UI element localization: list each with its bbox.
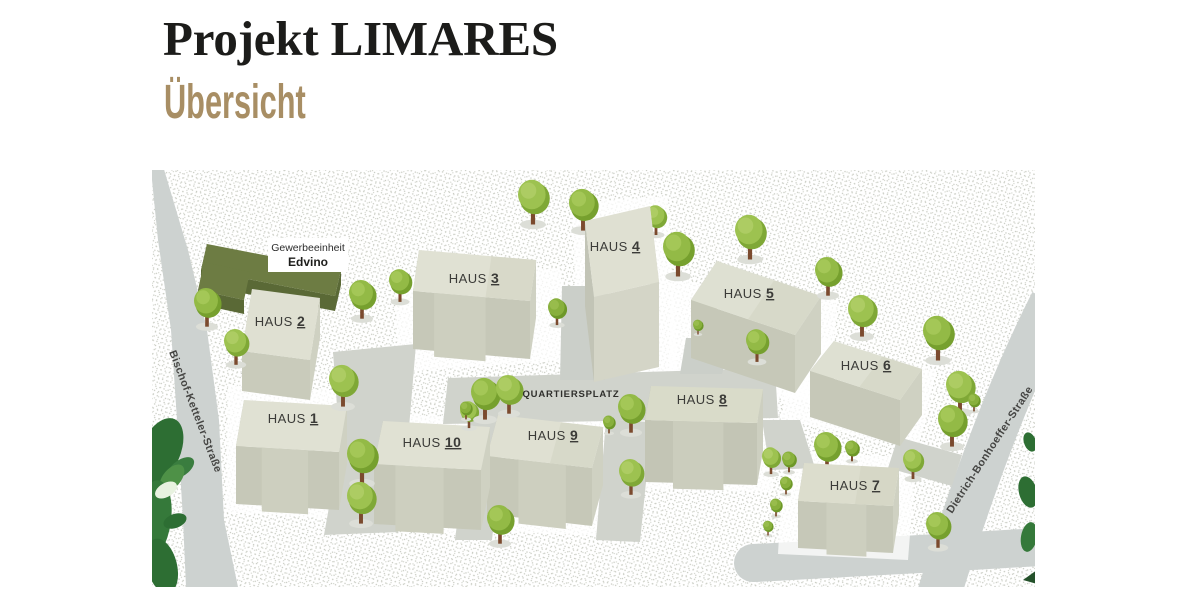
svg-text:HAUS 3: HAUS 3	[449, 270, 500, 286]
svg-text:QUARTIERSPLATZ: QUARTIERSPLATZ	[522, 389, 619, 400]
svg-text:HAUS 6: HAUS 6	[841, 357, 892, 373]
svg-text:HAUS 1: HAUS 1	[268, 410, 319, 426]
svg-text:HAUS 9: HAUS 9	[528, 427, 579, 443]
svg-text:Gewerbeeinheit: Gewerbeeinheit	[271, 242, 345, 254]
svg-text:HAUS 7: HAUS 7	[830, 477, 881, 493]
svg-text:HAUS 4: HAUS 4	[590, 238, 641, 254]
svg-text:HAUS 5: HAUS 5	[724, 285, 775, 301]
svg-text:HAUS 10: HAUS 10	[403, 434, 462, 450]
svg-text:Edvino: Edvino	[288, 255, 328, 269]
svg-text:HAUS 2: HAUS 2	[255, 313, 306, 329]
svg-text:HAUS 8: HAUS 8	[677, 391, 728, 407]
